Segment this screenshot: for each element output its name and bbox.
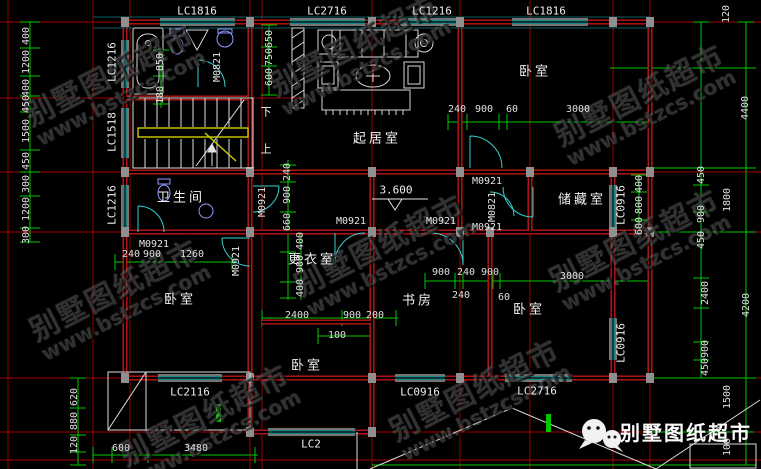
window-label-left-1: LC1216: [107, 42, 118, 82]
dim-study-5: 3000: [560, 272, 584, 282]
dim-bedleft-0: 240: [122, 250, 140, 260]
dim-study-1: 240: [457, 268, 475, 278]
door-label-storage-top: M0921: [472, 177, 502, 187]
dim-right-inner-1: 900: [697, 205, 707, 223]
dim-left-1: 1200: [22, 50, 32, 74]
door-label-row1: M0921: [336, 217, 366, 227]
dim-left-5: 450: [22, 152, 32, 170]
dim-storage-0: 400: [635, 175, 645, 193]
dim-right-outer-1: 4400: [741, 96, 751, 120]
elevation-marker: [372, 199, 428, 210]
dim-storage-2: 600: [635, 217, 645, 235]
dim-right-outer-2: 1800: [723, 188, 733, 212]
window-label-top-2: LC2716: [307, 6, 347, 17]
room-label-bedroom-bottom: 卧室: [291, 360, 323, 373]
dim-top-chain-1: 900: [475, 105, 493, 115]
doors-layer: [138, 60, 533, 266]
dim-bath-0: 850: [156, 53, 166, 71]
window-label-top-4: LC1816: [526, 6, 566, 17]
door-label-bath: M0821: [213, 52, 223, 82]
dim-right-outer-0: 120: [722, 5, 732, 23]
dim-dressing-2: 400: [296, 279, 306, 297]
dim-dressing-0: 400: [296, 232, 306, 250]
dim-living-left-2: 600: [265, 68, 275, 86]
dim-right-inner-2: 450: [697, 231, 707, 249]
dim-top-chain-3: 3000: [566, 105, 590, 115]
window-label-top-3: LC1216: [412, 6, 452, 17]
wechat-icon: [579, 419, 623, 452]
dim-hall-1: 900: [283, 186, 293, 204]
dim-bottom-left-h-1: 3480: [184, 444, 208, 454]
dim-right-inner-3: 2400: [701, 281, 711, 305]
dim-left-4: 1500: [22, 119, 32, 143]
window-label-mid-1: LC0916: [616, 185, 627, 225]
dim-bedleft-2: 1260: [180, 250, 204, 260]
dim-study-2: 900: [481, 268, 499, 278]
dim-bottom-left-v-1: 880: [70, 412, 80, 430]
room-label-bathroom: 卫生间: [157, 192, 205, 205]
dim-bottom-left-v-2: 120: [70, 436, 80, 454]
dim-dressing-1: 900: [296, 255, 306, 273]
dim-right-inner-4: 900: [701, 340, 711, 358]
dim-study-4: 60: [498, 293, 510, 303]
room-label-bedroom-left: 卧室: [164, 294, 196, 307]
dim-bath-1: 180: [156, 86, 166, 104]
window-label-bottom-2: LC0916: [400, 387, 440, 398]
dim-hall-0: 240: [283, 163, 293, 181]
dim-bottom-mid-1: 900: [343, 311, 361, 321]
door-label-row2: M0921: [426, 217, 456, 227]
furniture-layer: [133, 28, 433, 115]
dim-left-6: 300: [22, 175, 32, 193]
dim-left-3: 450: [22, 95, 32, 113]
dim-bedleft-1: 900: [143, 250, 161, 260]
room-label-study: 书房: [402, 295, 434, 308]
room-label-bedroom-top-right: 卧室: [519, 66, 551, 79]
dim-right-inner-5: 450: [701, 358, 711, 376]
elevation-value: 3.600: [379, 185, 412, 196]
walls: [125, 22, 650, 432]
door-label-hall: M0921: [258, 187, 268, 217]
room-label-bedroom-right: 卧室: [513, 304, 545, 317]
door-label-bedroom-left-side: M0921: [232, 246, 242, 276]
dim-bottom-mid-0: 2400: [285, 311, 309, 321]
dim-top-chain-0: 240: [448, 105, 466, 115]
stair-down-label: 下: [261, 107, 272, 118]
dim-bottom-mid-2: 200: [366, 311, 384, 321]
floorplan-canvas: 别墅图纸超市www.bstzcs.com 别墅图纸超市www.bstzcs.co…: [0, 0, 761, 469]
window-label-bottom-1: LC2116: [170, 387, 210, 398]
room-label-storage: 储藏室: [558, 194, 606, 207]
door-label-storage-side: M0821: [488, 192, 498, 222]
dim-bottom-mid-3: 100: [328, 331, 346, 341]
dim-right-inner-0: 450: [697, 166, 707, 184]
green-accents: [216, 404, 551, 432]
dim-left-0: 400: [22, 27, 32, 45]
footer-brand: 别墅图纸超市: [620, 423, 752, 443]
window-label-bottom-3: LC2716: [517, 386, 557, 397]
room-label-living: 起居室: [353, 133, 401, 146]
dim-bottom-left-v-0: 620: [70, 388, 80, 406]
door-label-row3: M0921: [472, 223, 502, 233]
dim-right-outer-4: 1500: [723, 385, 733, 409]
dim-left-8: 300: [22, 226, 32, 244]
window-label-left-2: LC1518: [107, 112, 118, 152]
dim-right-outer-3: 4200: [742, 293, 752, 317]
stair-up-label: 上: [261, 144, 272, 155]
window-label-left-3: LC1216: [107, 185, 118, 225]
dim-bottom-left-h-0: 600: [112, 444, 130, 454]
dim-living-left-1: 750: [265, 48, 275, 66]
columns: [121, 17, 654, 437]
dim-living-left-0: 650: [265, 30, 275, 48]
stairs: [133, 98, 253, 168]
dim-storage-1: 800: [635, 196, 645, 214]
dim-study-0: 900: [432, 268, 450, 278]
window-label-mid-2: LC0916: [616, 323, 627, 363]
dim-study-3: 240: [452, 291, 470, 301]
dim-hall-2: 660: [283, 213, 293, 231]
window-label-top-1: LC1816: [177, 6, 217, 17]
window-label-bottom-4: LC2: [301, 439, 321, 450]
dim-left-7: 1200: [22, 197, 32, 221]
dim-top-chain-2: 60: [506, 105, 518, 115]
